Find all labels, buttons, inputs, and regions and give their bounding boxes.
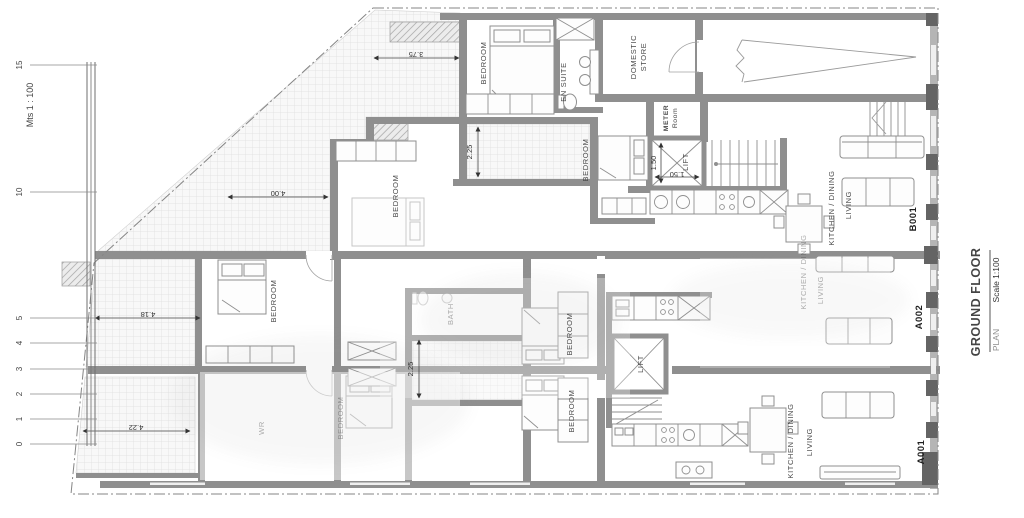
room-label-lift-b: LIFT: [681, 153, 690, 171]
title-project: GROUND FLOOR: [969, 248, 983, 357]
wardrobe: [336, 141, 416, 161]
room-label-kitchen-dining-a001: KITCHEN / DINING: [786, 403, 795, 478]
room-label-kitchen-dining-a002: KITCHEN / DINING: [799, 234, 808, 309]
dim-4-00: 4.00: [271, 189, 286, 198]
room-label-bedroom-a001-mid: BEDROOM: [567, 390, 576, 433]
floor-plan-canvas: 3.75 4.00 4.18 4.22 2.25 2.25 1.50 1.50 …: [0, 0, 1024, 518]
ruler-tick-3: 3: [15, 366, 24, 371]
dim-4-18: 4.18: [141, 310, 156, 319]
title-scale: Scale 1:100: [991, 257, 1001, 302]
title-sheet: PLAN: [991, 329, 1001, 351]
dim-4-22: 4.22: [129, 423, 144, 432]
room-label-living-a002: LIVING: [816, 276, 825, 304]
room-label-wr: WR: [257, 421, 266, 435]
unit-tag-b001: B001: [908, 206, 919, 231]
room-label-bath: BATH: [446, 303, 455, 325]
dim-2-25-top: 2.25: [465, 145, 474, 160]
bed: [598, 136, 648, 180]
room-label-bedroom-a002-mid: BEDROOM: [565, 313, 574, 356]
lift-b-shaft: [650, 138, 704, 188]
ruler-tick-4: 4: [15, 340, 24, 345]
unit-tags: B001 A002 A001: [908, 206, 927, 464]
kitchen-counter: [650, 190, 788, 214]
room-label-bedroom-top: BEDROOM: [479, 42, 488, 85]
wardrobe: [466, 94, 554, 114]
stairs: [712, 140, 778, 186]
island-unit: [676, 462, 712, 478]
ruler-tick-2: 2: [15, 391, 24, 396]
stairs: [612, 398, 662, 426]
ruler-tick-1: 1: [15, 416, 24, 421]
unit-tag-a001: A001: [916, 439, 927, 464]
ruler-tick-15: 15: [15, 60, 24, 69]
kitchen-counter: [612, 424, 748, 446]
ramp-arrow: [736, 40, 916, 82]
room-label-lift-a: LIFT: [636, 355, 645, 373]
bed: [218, 260, 266, 314]
room-label-bedroom-topright: BEDROOM: [581, 139, 590, 182]
sofa: [822, 392, 894, 418]
dim-2-25-court: 2.25: [406, 362, 415, 377]
room-label-living-a001: LIVING: [805, 428, 814, 456]
room-label-domestic: DOMESTIC: [629, 35, 638, 79]
room-label-bedroom-topleft: BEDROOM: [391, 175, 400, 218]
room-label-meter: METER: [663, 105, 670, 132]
bed: [352, 198, 424, 246]
room-label-store: STORE: [639, 43, 648, 72]
sofa: [820, 466, 900, 479]
title-block: GROUND FLOOR PLAN Scale 1:100: [969, 248, 1001, 357]
wardrobe: [602, 198, 646, 214]
room-label-kitchen-dining-b001: KITCHEN / DINING: [827, 170, 836, 245]
floor-plan-sheet: 3.75 4.00 4.18 4.22 2.25 2.25 1.50 1.50 …: [0, 0, 1024, 518]
ruler-tick-10: 10: [15, 187, 24, 196]
ruler-title: Mts 1 : 100: [25, 83, 35, 128]
unit-tag-a002: A002: [914, 305, 925, 330]
dim-1-50-v: 1.50: [649, 156, 658, 171]
ruler-tick-5: 5: [15, 315, 24, 320]
stairs: [870, 100, 905, 136]
sofa: [840, 136, 924, 158]
room-label-bedroom-a002-left: BEDROOM: [269, 280, 278, 323]
ruler-tick-0: 0: [15, 441, 24, 446]
room-label-bedroom-a001-left: BEDROOM: [336, 397, 345, 440]
room-label-living-b001: LIVING: [844, 191, 853, 219]
dim-3-75: 3.75: [409, 50, 424, 59]
room-label-en-suite: EN SUITE: [559, 62, 568, 101]
room-label-meter-room: Room: [672, 108, 679, 128]
